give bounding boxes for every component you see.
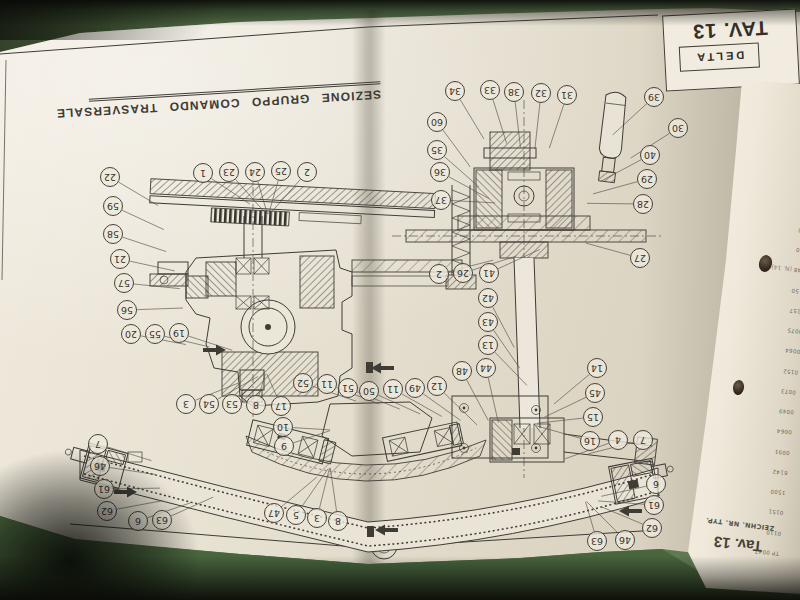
- callout-number: 53: [223, 395, 241, 412]
- callout-43: 43: [478, 312, 498, 332]
- callout-32: 32: [531, 83, 551, 103]
- callout-30: 30: [668, 118, 688, 138]
- callout-51: 51: [338, 378, 358, 398]
- callout-number: 15: [584, 408, 602, 425]
- photo-of-technical-manual: SEZIONE GRUPPO COMANDO TRASVERSALE TAV. …: [0, 0, 800, 600]
- callout-number: 34: [446, 82, 464, 99]
- callout-number: 44: [477, 359, 495, 376]
- callout-6: 6: [128, 511, 148, 531]
- callout-12: 12: [427, 376, 447, 396]
- callout-2: 2: [429, 264, 449, 284]
- callout-number: 56: [118, 301, 136, 318]
- callout-8: 8: [246, 395, 266, 415]
- callout-number: 41: [480, 264, 498, 281]
- callout-6: 6: [646, 474, 666, 494]
- callout-number: 55: [146, 325, 164, 342]
- callout-19: 19: [169, 323, 189, 343]
- callout-number: 31: [558, 86, 576, 103]
- callout-14: 14: [587, 358, 607, 378]
- callout-number: 33: [481, 81, 499, 98]
- callout-59: 59: [103, 196, 123, 216]
- callout-number: 5: [287, 506, 305, 523]
- callout-47: 47: [264, 503, 284, 523]
- callout-11: 11: [383, 379, 403, 399]
- callout-number: 59: [104, 197, 122, 214]
- binder-hole: [732, 379, 745, 396]
- callout-number: 61: [95, 480, 113, 497]
- callout-16: 16: [580, 431, 600, 451]
- callout-number: 37: [432, 191, 450, 208]
- callout-number: 6: [129, 512, 147, 529]
- callout-28: 28: [633, 194, 653, 214]
- callout-17: 17: [271, 396, 291, 416]
- callout-number: 7: [634, 431, 652, 448]
- callout-number: 46: [616, 531, 634, 548]
- callout-46: 46: [90, 456, 110, 476]
- part-number: 0152: [781, 225, 800, 234]
- callout-number: 38: [505, 83, 523, 100]
- callout-23: 23: [219, 162, 239, 182]
- callout-number: 58: [104, 225, 122, 242]
- callout-29: 29: [637, 169, 657, 189]
- tav-number-box: TAV. 13 DELTA: [662, 9, 800, 92]
- callout-number: 43: [479, 313, 497, 330]
- callout-38: 38: [504, 82, 524, 102]
- callout-number: 49: [406, 379, 424, 396]
- callout-53: 53: [222, 394, 242, 414]
- callout-62: 62: [97, 501, 117, 521]
- part-number: 0075: [770, 326, 800, 335]
- callout-number: 32: [532, 84, 550, 101]
- callout-number: 12: [428, 377, 446, 394]
- callout-number: 8: [329, 512, 347, 529]
- part-number: 0073: [764, 386, 796, 395]
- callout-number: 27: [631, 249, 649, 266]
- callout-1: 1: [193, 163, 213, 183]
- callout-37: 37: [431, 190, 451, 210]
- callout-number: 54: [200, 395, 218, 412]
- callout-57: 57: [114, 273, 134, 293]
- callout-number: 10: [274, 418, 292, 435]
- callout-15: 15: [583, 407, 603, 427]
- part-number: 0049: [762, 406, 794, 415]
- tav-label: TAV. 13: [663, 15, 796, 45]
- callout-number: 62: [643, 519, 661, 536]
- part-number: 0151: [751, 507, 783, 516]
- callout-3: 3: [307, 508, 327, 528]
- callout-31: 31: [557, 85, 577, 105]
- callout-34: 34: [445, 81, 465, 101]
- callout-number: 61: [645, 496, 663, 513]
- callout-number: 11: [318, 375, 336, 392]
- callout-number: 35: [428, 141, 446, 158]
- callout-52: 52: [293, 373, 313, 393]
- callout-number: 17: [272, 397, 290, 414]
- callout-number: 1: [194, 164, 212, 181]
- callout-number: 2: [298, 163, 316, 180]
- callout-number: 23: [220, 163, 238, 180]
- part-number: 0064: [768, 346, 800, 355]
- delta-label: DELTA: [680, 44, 759, 70]
- callout-7: 7: [633, 430, 653, 450]
- callout-25: 25: [271, 161, 291, 181]
- callout-number: 21: [111, 250, 129, 267]
- callout-58: 58: [103, 224, 123, 244]
- callout-number: 48: [453, 362, 471, 379]
- callout-number: 19: [170, 324, 188, 341]
- callout-number: 30: [669, 119, 687, 136]
- callout-8: 8: [328, 511, 348, 531]
- callout-54: 54: [199, 394, 219, 414]
- part-number: 6142: [755, 467, 787, 476]
- callout-number: 6: [647, 475, 665, 492]
- callout-number: 20: [122, 325, 140, 342]
- callout-56: 56: [117, 300, 137, 320]
- callout-number: 26: [454, 264, 472, 281]
- callout-number: 8: [247, 396, 265, 413]
- callout-number: 60: [428, 113, 446, 130]
- callout-2: 2: [297, 162, 317, 182]
- part-number: 0152: [766, 366, 798, 375]
- callout-33: 33: [480, 80, 500, 100]
- callout-24: 24: [245, 162, 265, 182]
- callout-number: 25: [272, 162, 290, 179]
- callout-50: 50: [359, 381, 379, 401]
- callout-4: 4: [608, 430, 628, 450]
- callout-number: 4: [609, 431, 627, 448]
- part-number: 0148: [776, 266, 800, 275]
- part-number: 1500: [753, 487, 785, 496]
- callout-62: 62: [642, 518, 662, 538]
- callout-46: 46: [615, 530, 635, 550]
- callout-number: 3: [308, 509, 326, 526]
- callout-61: 61: [94, 479, 114, 499]
- callout-number: 46: [91, 457, 109, 474]
- callout-number: 63: [153, 511, 171, 528]
- callout-63: 63: [587, 531, 607, 551]
- callout-21: 21: [110, 249, 130, 269]
- callout-20: 20: [121, 324, 141, 344]
- callout-number: 29: [638, 170, 656, 187]
- callout-number: 2: [430, 265, 448, 282]
- callout-number: 3: [177, 395, 195, 412]
- callout-39: 39: [644, 87, 664, 107]
- part-number: 0157: [772, 306, 800, 315]
- callout-number: 39: [645, 88, 663, 105]
- part-number: 0091: [757, 447, 789, 456]
- callout-number: 13: [479, 336, 497, 353]
- callout-9: 9: [274, 436, 294, 456]
- callout-number: 16: [581, 432, 599, 449]
- callout-45: 45: [585, 383, 605, 403]
- part-number: 0140: [779, 245, 800, 254]
- callout-number: 42: [479, 289, 497, 306]
- part-number: 0150: [774, 286, 800, 295]
- callout-number: 52: [294, 374, 312, 391]
- callout-41: 41: [479, 263, 499, 283]
- callout-11: 11: [317, 374, 337, 394]
- callout-number: 11: [384, 380, 402, 397]
- callout-26: 26: [453, 263, 473, 283]
- callout-number: 7: [89, 435, 107, 452]
- callout-7: 7: [88, 434, 108, 454]
- callout-63: 63: [152, 510, 172, 530]
- callout-55: 55: [145, 324, 165, 344]
- callout-40: 40: [640, 145, 660, 165]
- callout-number: 45: [586, 384, 604, 401]
- callout-10: 10: [273, 417, 293, 437]
- callout-42: 42: [478, 288, 498, 308]
- callout-35: 35: [427, 140, 447, 160]
- callout-13: 13: [478, 335, 498, 355]
- callout-5: 5: [286, 505, 306, 525]
- callout-number: 36: [431, 163, 449, 180]
- callout-3: 3: [176, 394, 196, 414]
- callout-number: 57: [115, 274, 133, 291]
- callout-number: 63: [588, 532, 606, 549]
- callout-number: 62: [98, 502, 116, 519]
- callout-22: 22: [100, 167, 120, 187]
- callout-27: 27: [630, 248, 650, 268]
- callout-number: 28: [634, 195, 652, 212]
- callout-60: 60: [427, 112, 447, 132]
- callout-number: 51: [339, 379, 357, 396]
- callout-number: 47: [265, 504, 283, 521]
- callout-49: 49: [405, 378, 425, 398]
- callout-number: 9: [275, 437, 293, 454]
- callout-61: 61: [644, 495, 664, 515]
- callout-36: 36: [430, 162, 450, 182]
- callout-44: 44: [476, 358, 496, 378]
- callout-number: 50: [360, 382, 378, 399]
- part-number-column: 0152014001480150015700750064015200730049…: [747, 225, 800, 557]
- callout-number: 40: [641, 146, 659, 163]
- callout-number: 22: [101, 168, 119, 185]
- callout-48: 48: [452, 361, 472, 381]
- callout-number: 14: [588, 359, 606, 376]
- callout-number: 24: [246, 163, 264, 180]
- delta-brand-box: DELTA: [679, 43, 760, 72]
- part-number: 0064: [760, 427, 792, 436]
